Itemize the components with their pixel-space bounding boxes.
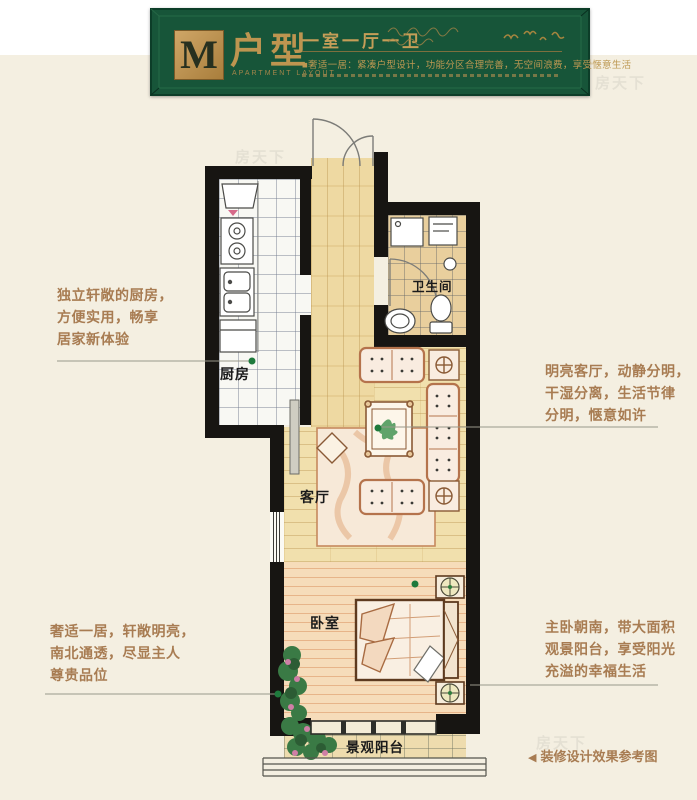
wall-kitchen-divider-lower xyxy=(300,315,311,425)
annotation-bedroom: 主卧朝南，带大面积 观景阳台，享受阳光 充溢的幸福生活 xyxy=(545,616,676,682)
annotation-line: 南北通透，尽显主人 xyxy=(50,642,195,664)
annotation-comfort: 奢适一居，轩敞明亮， 南北通透，尽显主人 尊贵品位 xyxy=(50,620,195,686)
annotation-line: 主卧朝南，带大面积 xyxy=(545,616,676,638)
annotation-line: 充溢的幸福生活 xyxy=(545,660,676,682)
annotation-line: 居家新体验 xyxy=(57,328,173,350)
annotation-line: 独立轩敞的厨房， xyxy=(57,284,173,306)
wall-balcony-left-block xyxy=(270,718,311,736)
header-plaque: M 户型 APARTMENT LAYOUT 一室一厅一卫 ■奢适一居：紧凑户型设… xyxy=(150,8,590,96)
annotation-line: 尊贵品位 xyxy=(50,664,195,686)
m-letter-badge: M xyxy=(174,30,224,80)
annotation-line: 观景阳台，享受阳光 xyxy=(545,638,676,660)
m-letter: M xyxy=(180,35,218,75)
header-room-spec: 一室一厅一卫 xyxy=(302,27,422,52)
header-description: ■奢适一居：紧凑户型设计，功能分区合理完善，无空间浪费，享受惬意生活 xyxy=(302,57,570,71)
annotation-line: 分明，惬意如许 xyxy=(545,404,690,426)
wall-bath-left-a xyxy=(374,215,388,257)
header-description-text: 奢适一居：紧凑户型设计，功能分区合理完善，无空间浪费，享受惬意生活 xyxy=(308,60,631,71)
room-label-bathroom: 卫生间 xyxy=(412,276,453,295)
room-label-bedroom: 卧室 xyxy=(310,613,340,633)
annotation-line: 明亮客厅，动静分明， xyxy=(545,360,690,382)
wall-bath-top xyxy=(374,202,480,215)
watermark: 房天下 xyxy=(595,72,646,93)
room-label-living: 客厅 xyxy=(300,487,330,507)
room-label-balcony: 景观阳台 xyxy=(346,736,404,756)
balcony-railing xyxy=(263,758,486,776)
living-floor-upper xyxy=(374,347,466,427)
wall-bath-bottom xyxy=(374,335,480,347)
header-title: 户型 xyxy=(230,22,310,74)
living-left-window xyxy=(270,512,284,562)
wall-balcony-right-block xyxy=(436,714,480,734)
header-divider-line xyxy=(302,51,562,52)
annotation-kitchen: 独立轩敞的厨房， 方便实用，畅享 居家新体验 xyxy=(57,284,173,350)
bathroom-floor xyxy=(388,215,466,335)
annotation-living: 明亮客厅，动静分明， 干湿分离，生活节律 分明，惬意如许 xyxy=(545,360,690,426)
annotation-line: 干湿分离，生活节律 xyxy=(545,382,690,404)
wall-kitchen-left xyxy=(205,166,219,438)
annotation-line: 奢适一居，轩敞明亮， xyxy=(50,620,195,642)
wall-kitchen-top xyxy=(205,166,312,179)
hallway-floor xyxy=(311,158,374,427)
watermark: 房天下 xyxy=(235,146,286,167)
kitchen-floor xyxy=(219,179,311,425)
wall-living-left xyxy=(270,425,284,512)
watermark: 房天下 xyxy=(536,732,587,753)
annotation-line: 方便实用，畅享 xyxy=(57,306,173,328)
bedroom-floor xyxy=(284,562,466,722)
wall-bedroom-left xyxy=(270,562,284,722)
wall-right-outer xyxy=(466,202,480,734)
micro-english-text xyxy=(302,74,560,77)
page: M 户型 APARTMENT LAYOUT 一室一厅一卫 ■奢适一居：紧凑户型设… xyxy=(0,0,697,800)
room-label-kitchen: 厨房 xyxy=(220,364,250,384)
left-triangle-icon: ◀ xyxy=(528,752,536,764)
birds-icon xyxy=(504,32,564,41)
wall-kitchen-divider-upper xyxy=(300,179,311,275)
